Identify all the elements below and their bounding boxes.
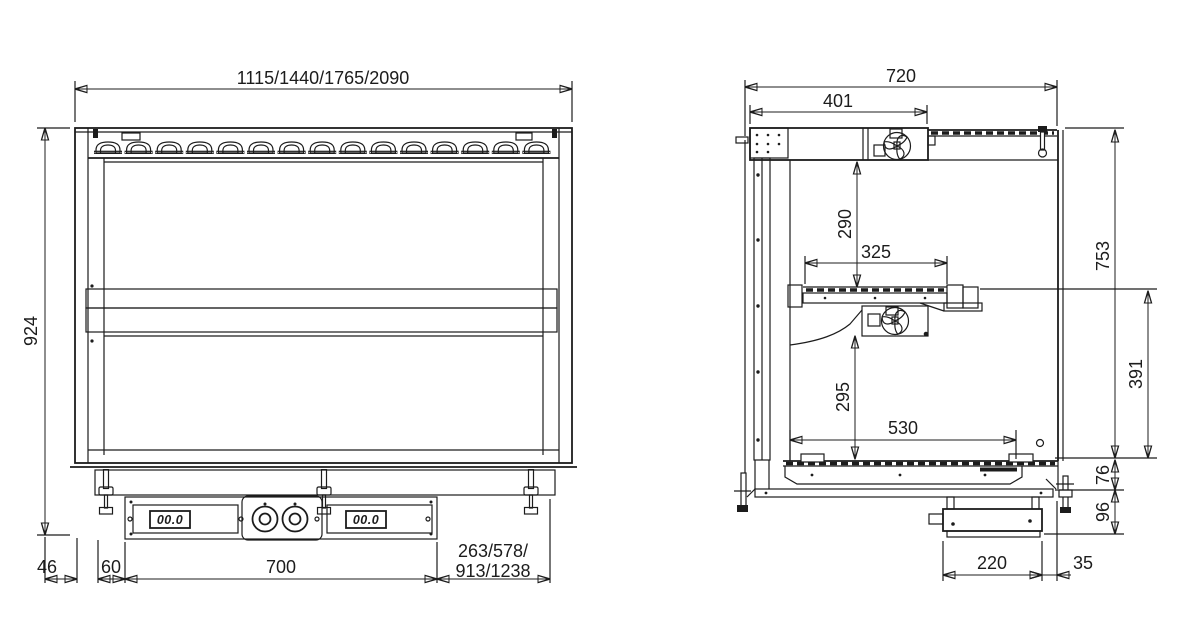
dim-side-offset-label: 46 [37, 557, 57, 577]
adjustable-foot-icon [317, 470, 331, 515]
vent-icon [216, 142, 244, 154]
dim-edge-inset-label: 60 [101, 557, 121, 577]
vent-icon [492, 142, 520, 154]
clip-icon [552, 129, 557, 138]
dim-junction-box-depth-label: 220 [977, 553, 1007, 573]
vent-icon [125, 142, 153, 154]
dim-junction-box-height-label: 96 [1093, 502, 1113, 522]
vent-icon [339, 142, 367, 154]
control-panel: 00.0 00.0 [125, 496, 437, 540]
side-dimensions: 720 401 290 325 753 391 295 530 76 96 22… [745, 66, 1157, 581]
dim-junction-box-offset-label: 35 [1073, 553, 1093, 573]
temperature-display-left-value: 00.0 [157, 513, 183, 527]
dim-base-height-label: 76 [1093, 465, 1113, 485]
dim-well-depth-label: 530 [888, 418, 918, 438]
knob-right-icon [283, 507, 308, 532]
vent-icon [431, 142, 459, 154]
vent-icon [369, 142, 397, 154]
intermediate-shelf [788, 285, 982, 311]
dimension-drawing: 00.0 00.0 [0, 0, 1203, 644]
clip-icon [93, 129, 98, 138]
dim-interior-height-label: 753 [1093, 241, 1113, 271]
cable-gland-icon [929, 514, 943, 524]
top-rail [928, 126, 1057, 157]
dim-clearance-under-shelf-label: 295 [833, 382, 853, 412]
foot-pad-icon [737, 505, 748, 512]
vent-icon [400, 142, 428, 154]
bottom-well [783, 454, 1058, 484]
vent-icon [94, 142, 122, 154]
vent-icon [247, 142, 275, 154]
hole-icon [1037, 440, 1044, 447]
technical-drawing-page: 00.0 00.0 [0, 0, 1203, 644]
knob-left-icon [253, 507, 278, 532]
vent-icon [186, 142, 214, 154]
bolt-icon [1038, 126, 1047, 132]
screw-icon [426, 517, 430, 521]
vent-icon [522, 142, 550, 154]
dim-control-panel-width-label: 700 [266, 557, 296, 577]
back-panel [1037, 130, 1064, 461]
adjustable-foot-icon [524, 470, 538, 515]
dim-cutout-offset-label-line2: 913/1238 [455, 561, 530, 581]
dim-cutout-offset-label-line1: 263/578/ [458, 541, 528, 561]
side-view: 720 401 290 325 753 391 295 530 76 96 22… [734, 66, 1157, 581]
dim-canopy-to-shelf-label: 290 [835, 209, 855, 239]
front-view: 00.0 00.0 [21, 68, 577, 583]
vent-icon [278, 142, 306, 154]
dim-overall-height-label: 924 [21, 316, 41, 346]
knob-panel [242, 496, 322, 540]
vent-icon [155, 142, 183, 154]
shelf-fan-icon [881, 308, 909, 335]
case-body [75, 128, 572, 463]
vent-icon [308, 142, 336, 154]
canopy-fan-icon [883, 133, 911, 160]
vent-band [93, 129, 557, 154]
clip-icon [516, 133, 532, 140]
base-plate [747, 460, 1074, 513]
dim-shelf-to-well-label: 391 [1126, 359, 1146, 389]
dim-overall-depth-label: 720 [886, 66, 916, 86]
shelf-fan-unit [790, 306, 928, 345]
front-glass-edge [734, 137, 751, 512]
clip-icon [122, 133, 140, 140]
dim-canopy-depth-label: 401 [823, 91, 853, 111]
screw-icon [315, 517, 319, 521]
temperature-display-right: 00.0 [327, 505, 432, 533]
dim-overall-width-label: 1115/1440/1765/2090 [237, 68, 410, 88]
screw-icon [128, 517, 132, 521]
adjustable-foot-icon [99, 470, 113, 515]
foot-pad-icon [1060, 507, 1071, 513]
dim-shelf-depth-label: 325 [861, 242, 891, 262]
temperature-display-left: 00.0 [133, 505, 238, 533]
heater-element-icon [980, 468, 1017, 472]
middle-shelf [86, 289, 557, 336]
temperature-display-right-value: 00.0 [353, 513, 379, 527]
left-wall [754, 158, 790, 461]
vent-icon [461, 142, 489, 154]
junction-box [929, 497, 1042, 537]
